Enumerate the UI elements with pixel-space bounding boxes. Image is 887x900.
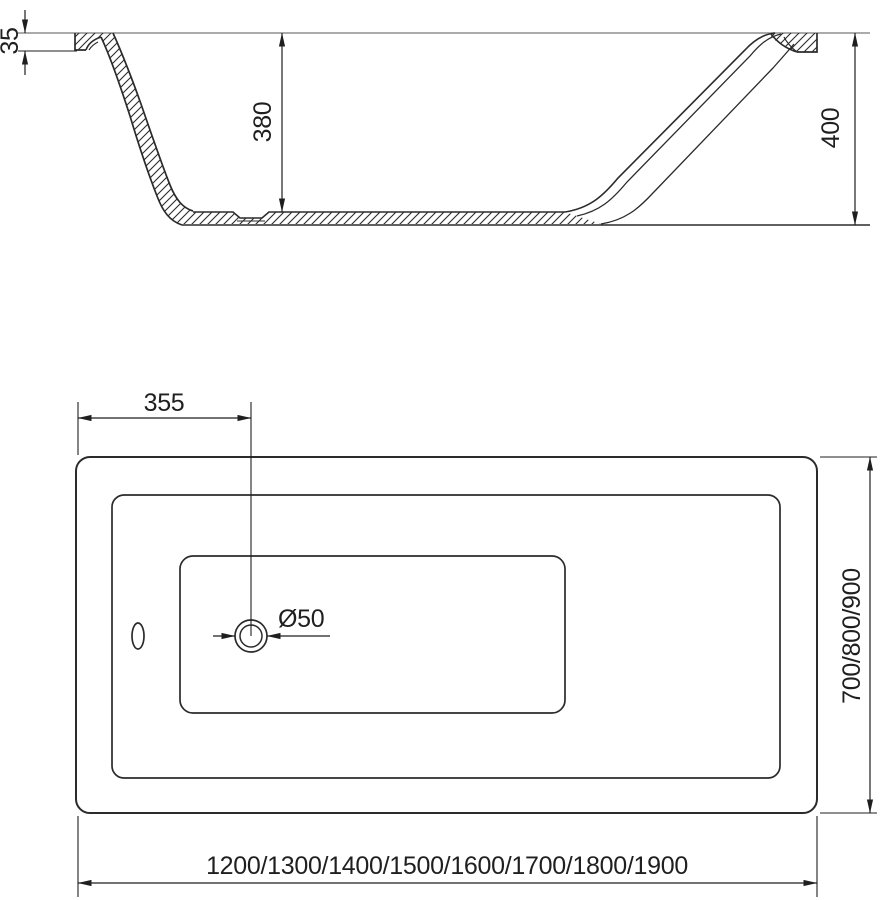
slope-inner-line xyxy=(565,33,775,212)
dim-35-label: 35 xyxy=(0,27,24,54)
section-view: 35 380 400 xyxy=(0,10,870,225)
dim-width-label: 700/800/900 xyxy=(838,568,866,704)
drawing-canvas: 35 380 400 355 Ø50 xyxy=(0,0,887,900)
dim-drain-offset xyxy=(78,402,251,636)
dim-length-label: 1200/1300/1400/1500/1600/1700/1800/1900 xyxy=(206,852,688,880)
tub-section-shape xyxy=(75,33,870,225)
dim-50-label: Ø50 xyxy=(278,605,324,633)
plan-view: 355 Ø50 700/800/900 1200/1300/1400/1500/… xyxy=(76,389,877,897)
dim-380-label: 380 xyxy=(249,102,277,143)
bathtub-technical-drawing: 35 380 400 355 Ø50 xyxy=(0,0,887,900)
slope-outer-line xyxy=(601,44,794,224)
overflow-hole xyxy=(132,623,144,649)
dim-355-label: 355 xyxy=(144,389,185,417)
tub-plan-shape xyxy=(76,457,817,813)
dim-400-label: 400 xyxy=(817,108,845,149)
tub-outer-rect xyxy=(76,457,817,813)
dim-rim-thickness xyxy=(18,10,77,75)
tub-rim-rect xyxy=(112,495,780,778)
tub-bottom-rect xyxy=(180,556,565,713)
